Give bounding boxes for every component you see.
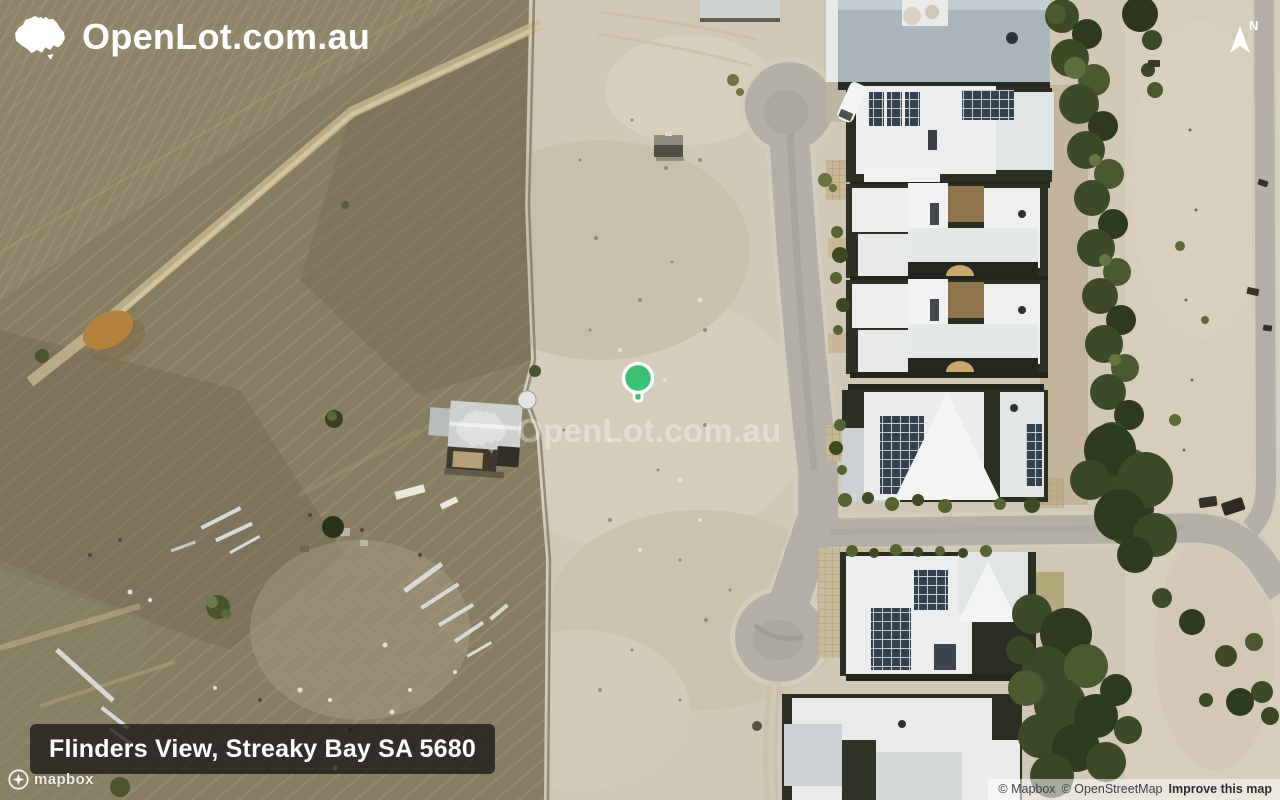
attribution-osm-link[interactable]: © OpenStreetMap [1062,782,1163,796]
mapbox-logo-text: mapbox [34,771,94,788]
openlot-logo: OpenLot.com.au [14,14,370,60]
openlot-logo-text: OpenLot.com.au [82,16,370,58]
map-viewport[interactable]: OpenLot.com.au OpenLot.com.au N Flinders… [0,0,1280,800]
partial-roof-top [700,0,780,22]
attribution-mapbox-link[interactable]: © Mapbox [998,782,1055,796]
map-attribution: © Mapbox © OpenStreetMap Improve this ma… [988,779,1280,800]
solar-panels [869,92,884,126]
farmland-area [0,0,550,800]
house-roof-5 [842,384,1048,502]
house-roof-4 [846,279,1048,378]
mapbox-logo[interactable]: mapbox [8,769,94,790]
house-roof-7 [782,694,1022,800]
solar-panels [871,608,911,670]
north-label: N [1249,18,1258,33]
house-roof-3 [846,183,1048,282]
location-label: Flinders View, Streaky Bay SA 5680 [30,724,495,774]
location-marker[interactable] [616,359,660,409]
house-roof-1 [826,0,1050,90]
house-roof-6 [840,552,1036,681]
improve-map-link[interactable]: Improve this map [1169,782,1273,796]
mapbox-icon [8,769,29,790]
australia-map-icon [14,14,66,60]
house-roof-2 [836,80,1054,196]
north-arrow-control: N [1228,18,1268,60]
small-shed [654,131,684,161]
